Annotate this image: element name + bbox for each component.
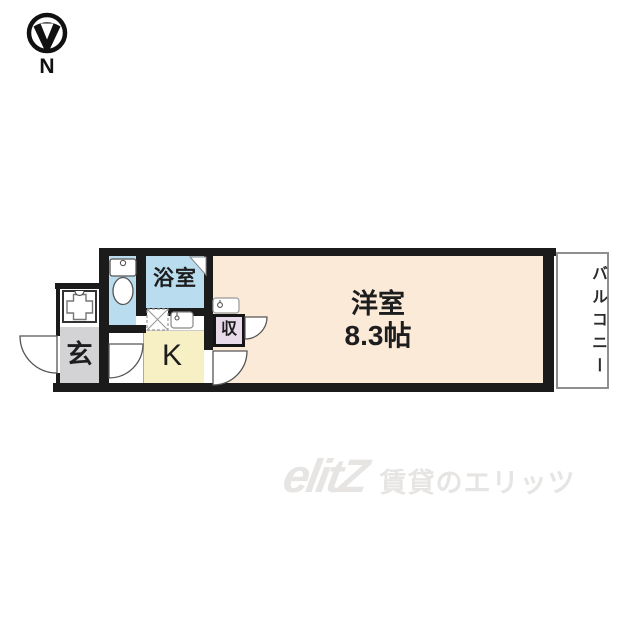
main-room-label: 洋室 — [250, 291, 506, 318]
genkan-label: 玄 — [60, 341, 99, 367]
bathroom-label: 浴室 — [146, 268, 204, 289]
floorplan-overlay — [0, 0, 640, 640]
watermark-logo: elitZ — [279, 448, 370, 503]
gas-stove-icon — [147, 309, 168, 330]
kitchen-label: K — [140, 341, 204, 371]
compass-label: N — [36, 56, 58, 77]
compass-north-arrow-icon — [29, 15, 65, 52]
floorplan-page: N 玄 浴室 K 収 洋室 8.3帖 バルコニー elitZ 賃貸のエリッツ — [0, 0, 640, 640]
watermark-tagline: 賃貸のエリッツ — [380, 461, 576, 500]
toilet-icon — [110, 259, 136, 305]
kitchen-sink-icon — [171, 312, 193, 328]
balcony-label: バルコニー — [556, 261, 609, 383]
main-room-size: 8.3帖 — [250, 322, 506, 350]
hall-door-swing-arc — [109, 344, 143, 378]
entrance-door-swing-arc — [20, 336, 57, 373]
watermark: elitZ 賃貸のエリッツ — [284, 448, 576, 503]
room-door-swing-arc — [213, 351, 247, 385]
washing-machine-pan-icon — [63, 291, 96, 322]
closet-label: 収 — [213, 322, 245, 338]
washbasin-icon — [213, 298, 239, 313]
